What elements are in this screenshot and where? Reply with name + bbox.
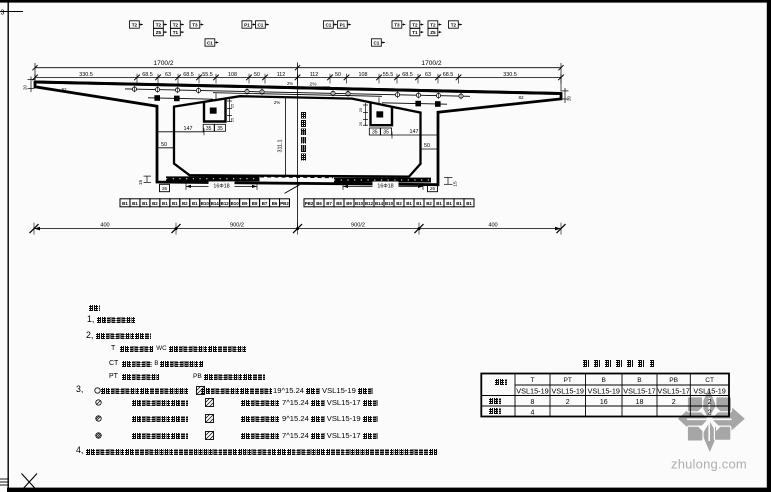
svg-text:147: 147: [410, 129, 419, 135]
svg-text:T2: T2: [412, 22, 418, 27]
svg-text:2: 2: [708, 409, 712, 416]
svg-text:26: 26: [430, 186, 436, 191]
svg-text:P1: P1: [244, 22, 250, 27]
svg-text:VSL15-19: VSL15-19: [552, 386, 584, 395]
svg-text:25: 25: [230, 103, 235, 108]
svg-text:B2: B2: [182, 201, 188, 206]
svg-text:B6: B6: [272, 201, 278, 206]
svg-text:PB2: PB2: [305, 201, 314, 206]
svg-text:900/2: 900/2: [351, 223, 365, 229]
svg-text:68.5: 68.5: [402, 72, 413, 78]
svg-text:B1: B1: [162, 201, 168, 206]
svg-text:2%: 2%: [274, 100, 280, 105]
svg-text:68.5: 68.5: [183, 72, 194, 78]
svg-text:B1: B1: [416, 201, 422, 206]
svg-text:25: 25: [358, 121, 363, 126]
svg-text:B12: B12: [221, 201, 230, 206]
svg-text:15: 15: [453, 181, 459, 187]
svg-text:2: 2: [708, 399, 712, 406]
svg-text:C1: C1: [373, 40, 379, 45]
svg-text:T3: T3: [192, 22, 198, 27]
svg-text:C1: C1: [325, 22, 331, 27]
svg-text:T: T: [530, 377, 534, 384]
svg-text:T2: T2: [430, 22, 436, 27]
svg-text:B1: B1: [456, 201, 462, 206]
svg-text:25: 25: [358, 107, 363, 112]
svg-text:35: 35: [206, 126, 212, 132]
svg-text:50: 50: [335, 72, 341, 78]
svg-text:82: 82: [518, 95, 524, 100]
svg-text:CT: CT: [705, 377, 714, 384]
svg-text:B2: B2: [152, 201, 158, 206]
svg-text:B1: B1: [446, 201, 452, 206]
svg-text:B1: B1: [122, 201, 128, 206]
svg-text:B7: B7: [326, 201, 332, 206]
svg-text:20: 20: [567, 96, 572, 101]
svg-text:112: 112: [277, 72, 286, 78]
svg-text:16: 16: [600, 399, 608, 406]
svg-text:B14: B14: [375, 201, 384, 206]
svg-text:16Φ18: 16Φ18: [213, 183, 229, 189]
svg-text:63: 63: [425, 72, 431, 78]
svg-text:15: 15: [138, 180, 144, 186]
svg-text:B2: B2: [426, 201, 432, 206]
svg-text:55.5: 55.5: [202, 72, 213, 78]
svg-text:PB2: PB2: [280, 201, 289, 206]
svg-text:B9: B9: [242, 201, 248, 206]
svg-text:25: 25: [230, 117, 235, 122]
svg-text:2%: 2%: [310, 81, 318, 87]
svg-text:B7: B7: [262, 201, 268, 206]
svg-text:63: 63: [165, 72, 171, 78]
svg-text:B1: B1: [142, 201, 148, 206]
svg-text:VSL15-19: VSL15-19: [693, 386, 725, 395]
svg-text:VSL15-17: VSL15-17: [623, 386, 655, 395]
svg-text:35: 35: [383, 130, 389, 136]
svg-text:2%: 2%: [287, 81, 293, 86]
svg-text:108: 108: [228, 72, 237, 78]
svg-text:330.5: 330.5: [503, 72, 517, 78]
svg-text:50: 50: [161, 142, 167, 148]
svg-text:B10: B10: [231, 201, 240, 206]
svg-text:18: 18: [636, 399, 644, 406]
svg-text:2: 2: [566, 399, 570, 406]
svg-text:B12: B12: [365, 201, 374, 206]
svg-text:108: 108: [359, 72, 368, 78]
svg-text:900/2: 900/2: [230, 223, 244, 229]
svg-text:VSL15-17: VSL15-17: [657, 386, 689, 395]
svg-text:35: 35: [372, 130, 378, 136]
svg-text:PT: PT: [564, 377, 572, 384]
svg-text:B10: B10: [385, 201, 394, 206]
svg-text:B: B: [637, 377, 642, 384]
svg-text:T2: T2: [156, 22, 162, 27]
svg-text:B2: B2: [396, 201, 402, 206]
svg-text:311.1: 311.1: [278, 139, 284, 152]
svg-text:B6: B6: [316, 201, 322, 206]
svg-text:20: 20: [23, 85, 28, 90]
svg-text:B1: B1: [192, 201, 198, 206]
svg-text:B8: B8: [252, 201, 258, 206]
svg-text:zhulong.com: zhulong.com: [671, 457, 747, 472]
svg-text:B1: B1: [132, 201, 138, 206]
svg-text:B9: B9: [346, 201, 352, 206]
svg-text:112: 112: [310, 72, 319, 78]
svg-text:T2: T2: [173, 22, 179, 27]
svg-text:B1: B1: [466, 201, 472, 206]
svg-text:B: B: [602, 377, 607, 384]
svg-text:2: 2: [672, 399, 676, 406]
svg-text:B1: B1: [406, 201, 412, 206]
svg-text:16Φ18: 16Φ18: [377, 183, 393, 189]
svg-text:400: 400: [100, 223, 109, 229]
svg-text:VSL15-19: VSL15-19: [588, 386, 620, 395]
svg-text:C1: C1: [257, 22, 263, 27]
svg-text:330.5: 330.5: [79, 72, 93, 78]
svg-text:1700/2: 1700/2: [421, 60, 442, 67]
svg-text:T3: T3: [394, 22, 400, 27]
svg-text:50: 50: [254, 72, 260, 78]
svg-text:8: 8: [531, 399, 535, 406]
svg-text:B1: B1: [172, 201, 178, 206]
svg-text:VSL15-19: VSL15-19: [516, 386, 548, 395]
svg-text:B10: B10: [355, 201, 364, 206]
svg-text:C1: C1: [207, 40, 213, 45]
svg-text:T1: T1: [173, 30, 179, 35]
svg-text:50: 50: [424, 143, 430, 149]
svg-text:147: 147: [184, 126, 193, 132]
svg-text:400: 400: [488, 223, 497, 229]
svg-text:B1: B1: [436, 201, 442, 206]
svg-text:Z5: Z5: [156, 30, 162, 35]
svg-text:68.5: 68.5: [443, 72, 454, 78]
svg-text:T2: T2: [132, 22, 138, 27]
svg-text:3: 3: [1, 10, 5, 17]
svg-text:B14: B14: [211, 201, 220, 206]
svg-text:P1: P1: [340, 22, 346, 27]
svg-text:B10: B10: [201, 201, 210, 206]
svg-text:68.5: 68.5: [142, 72, 153, 78]
svg-text:4: 4: [531, 409, 535, 416]
svg-text:82: 82: [61, 87, 67, 92]
svg-text:T1: T1: [412, 30, 418, 35]
svg-text:B8: B8: [336, 201, 342, 206]
svg-text:1700/2: 1700/2: [153, 60, 174, 67]
svg-text:55.5: 55.5: [383, 72, 394, 78]
svg-text:Z5: Z5: [430, 30, 436, 35]
svg-text:26: 26: [162, 186, 168, 191]
svg-text:T2: T2: [451, 22, 457, 27]
svg-text:35: 35: [217, 126, 223, 132]
svg-text:PB: PB: [669, 377, 678, 384]
